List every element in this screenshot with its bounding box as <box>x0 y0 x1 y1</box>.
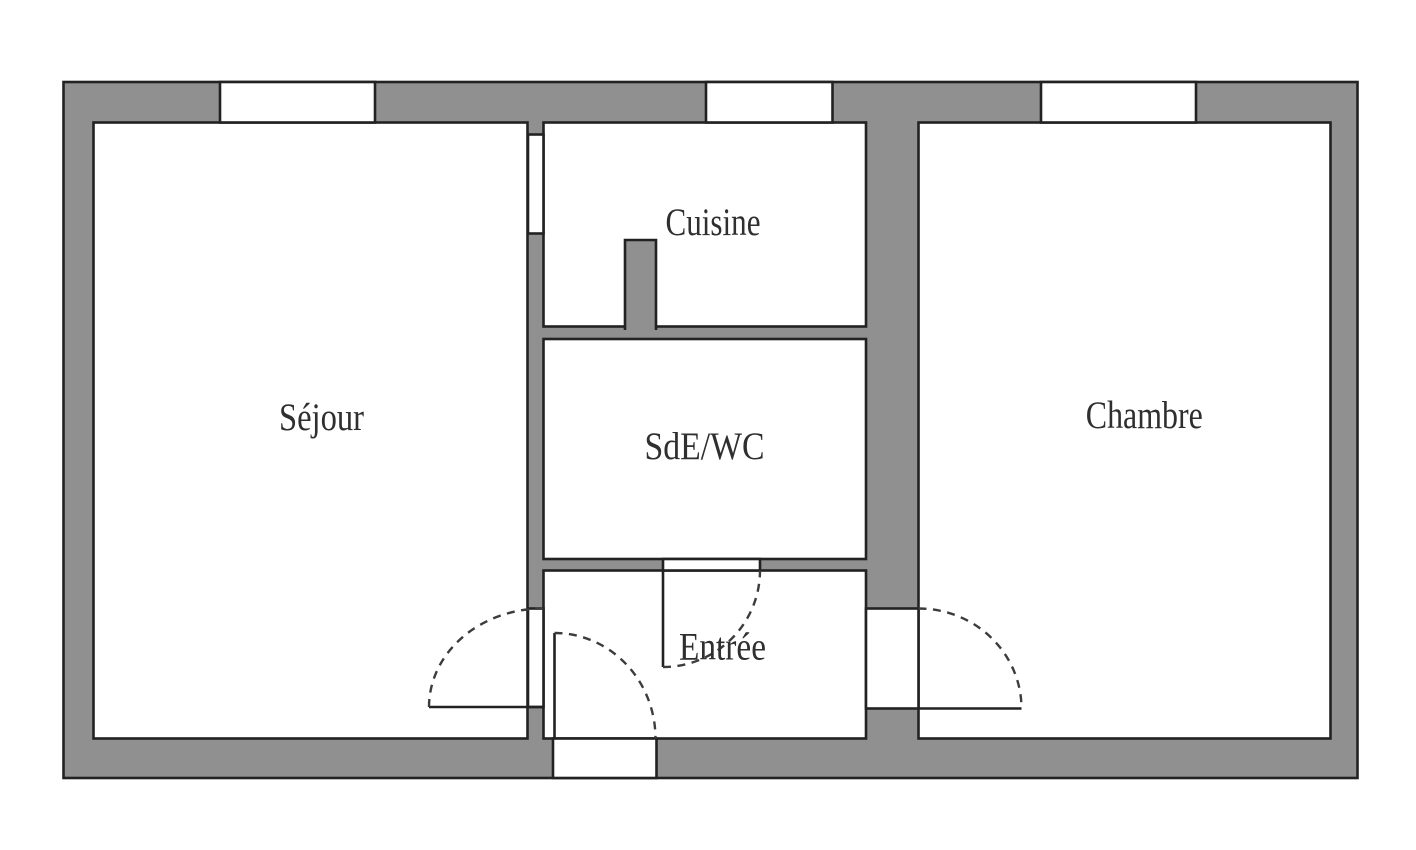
svg-text:SdE/WC: SdE/WC <box>645 424 765 467</box>
svg-text:Chambre: Chambre <box>1086 393 1203 436</box>
svg-text:Séjour: Séjour <box>279 395 364 438</box>
svg-text:Entrée: Entrée <box>679 625 766 668</box>
svg-text:Cuisine: Cuisine <box>666 200 761 243</box>
